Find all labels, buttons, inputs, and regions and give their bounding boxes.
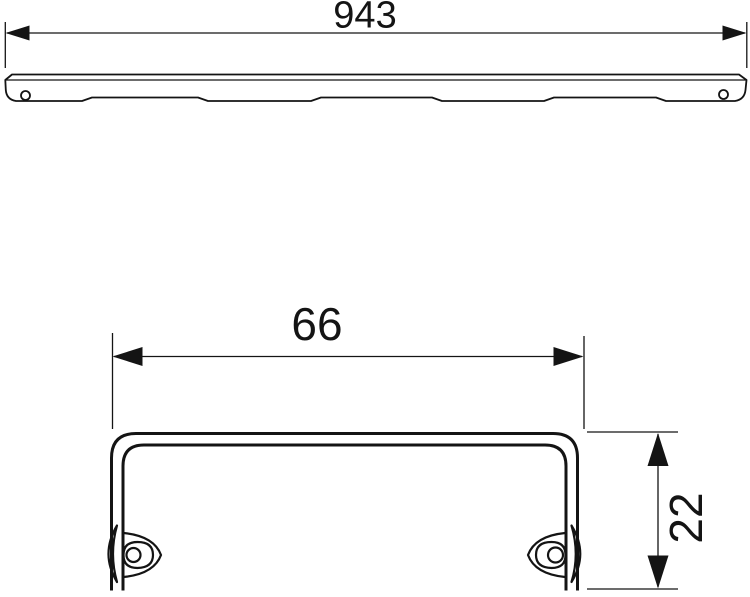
section-inner-profile (123, 445, 566, 591)
drain-grate-drawing: 943 66 (0, 0, 750, 597)
arrow-right-icon (554, 347, 584, 366)
dimension-overall-length-label: 943 (333, 0, 396, 37)
dimension-profile-width-label: 66 (291, 298, 342, 350)
technical-drawing-canvas: 943 66 (0, 0, 750, 597)
dimension-overall-length: 943 (5, 0, 747, 68)
dimension-profile-width: 66 (113, 298, 585, 429)
dimension-profile-height-label: 22 (660, 492, 712, 543)
foot-left-eye-middle (124, 542, 154, 568)
side-view-hole-left (21, 91, 30, 100)
grate-side-view (5, 75, 746, 102)
foot-right-eye-middle (536, 542, 566, 568)
side-view-hole-right (719, 90, 728, 99)
dimension-profile-height: 22 (587, 432, 712, 589)
foot-right-eye-inner (548, 548, 563, 563)
arrow-left-icon (113, 347, 143, 366)
arrow-right-icon (723, 26, 747, 41)
arrow-up-icon (648, 433, 669, 466)
grate-cross-section (109, 434, 581, 591)
arrow-left-icon (6, 26, 30, 41)
foot-left-lens (109, 526, 118, 583)
section-outer-profile (112, 434, 578, 591)
section-foot-left (109, 526, 162, 583)
foot-left-eye-outline (124, 533, 162, 577)
foot-left-eye-inner (127, 548, 141, 562)
side-view-outline (5, 75, 746, 102)
foot-right-eye-outline (528, 533, 565, 577)
section-foot-right (528, 526, 580, 583)
arrow-down-icon (648, 556, 669, 589)
